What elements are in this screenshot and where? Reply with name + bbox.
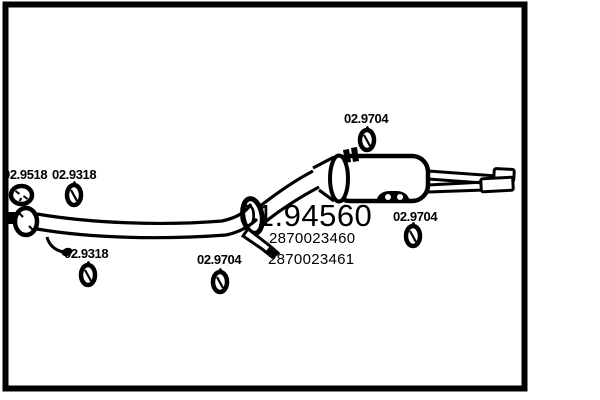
frame-border <box>6 5 525 389</box>
oe-number-1: 2870023460 <box>269 230 355 247</box>
rubber-mount-icon <box>81 262 95 286</box>
label-front-mount-upper: 02.9318 <box>52 167 96 182</box>
rubber-mount-icon <box>67 182 81 206</box>
tailpipe-tip-lower <box>481 177 514 192</box>
label-front-clamp: 02.9518 <box>3 167 47 182</box>
clamp-ring-icon <box>11 186 32 204</box>
rubber-mount-icon <box>360 127 374 151</box>
label-muffler-rear-mount: 02.9704 <box>393 209 438 224</box>
label-front-mount-lower: 02.9318 <box>64 246 108 261</box>
label-center-mount: 02.9704 <box>197 252 242 267</box>
exhaust-diagram-canvas: 01.94560 <box>0 0 600 400</box>
label-muffler-top-mount: 02.9704 <box>344 111 389 126</box>
rubber-mount-icon <box>406 223 420 247</box>
catalog-diagram-page: 01.94560 <box>0 0 600 400</box>
rubber-mount-icon <box>213 269 227 293</box>
pipe-clamp-drawing <box>15 208 37 235</box>
oe-number-2: 2870023461 <box>268 251 354 268</box>
